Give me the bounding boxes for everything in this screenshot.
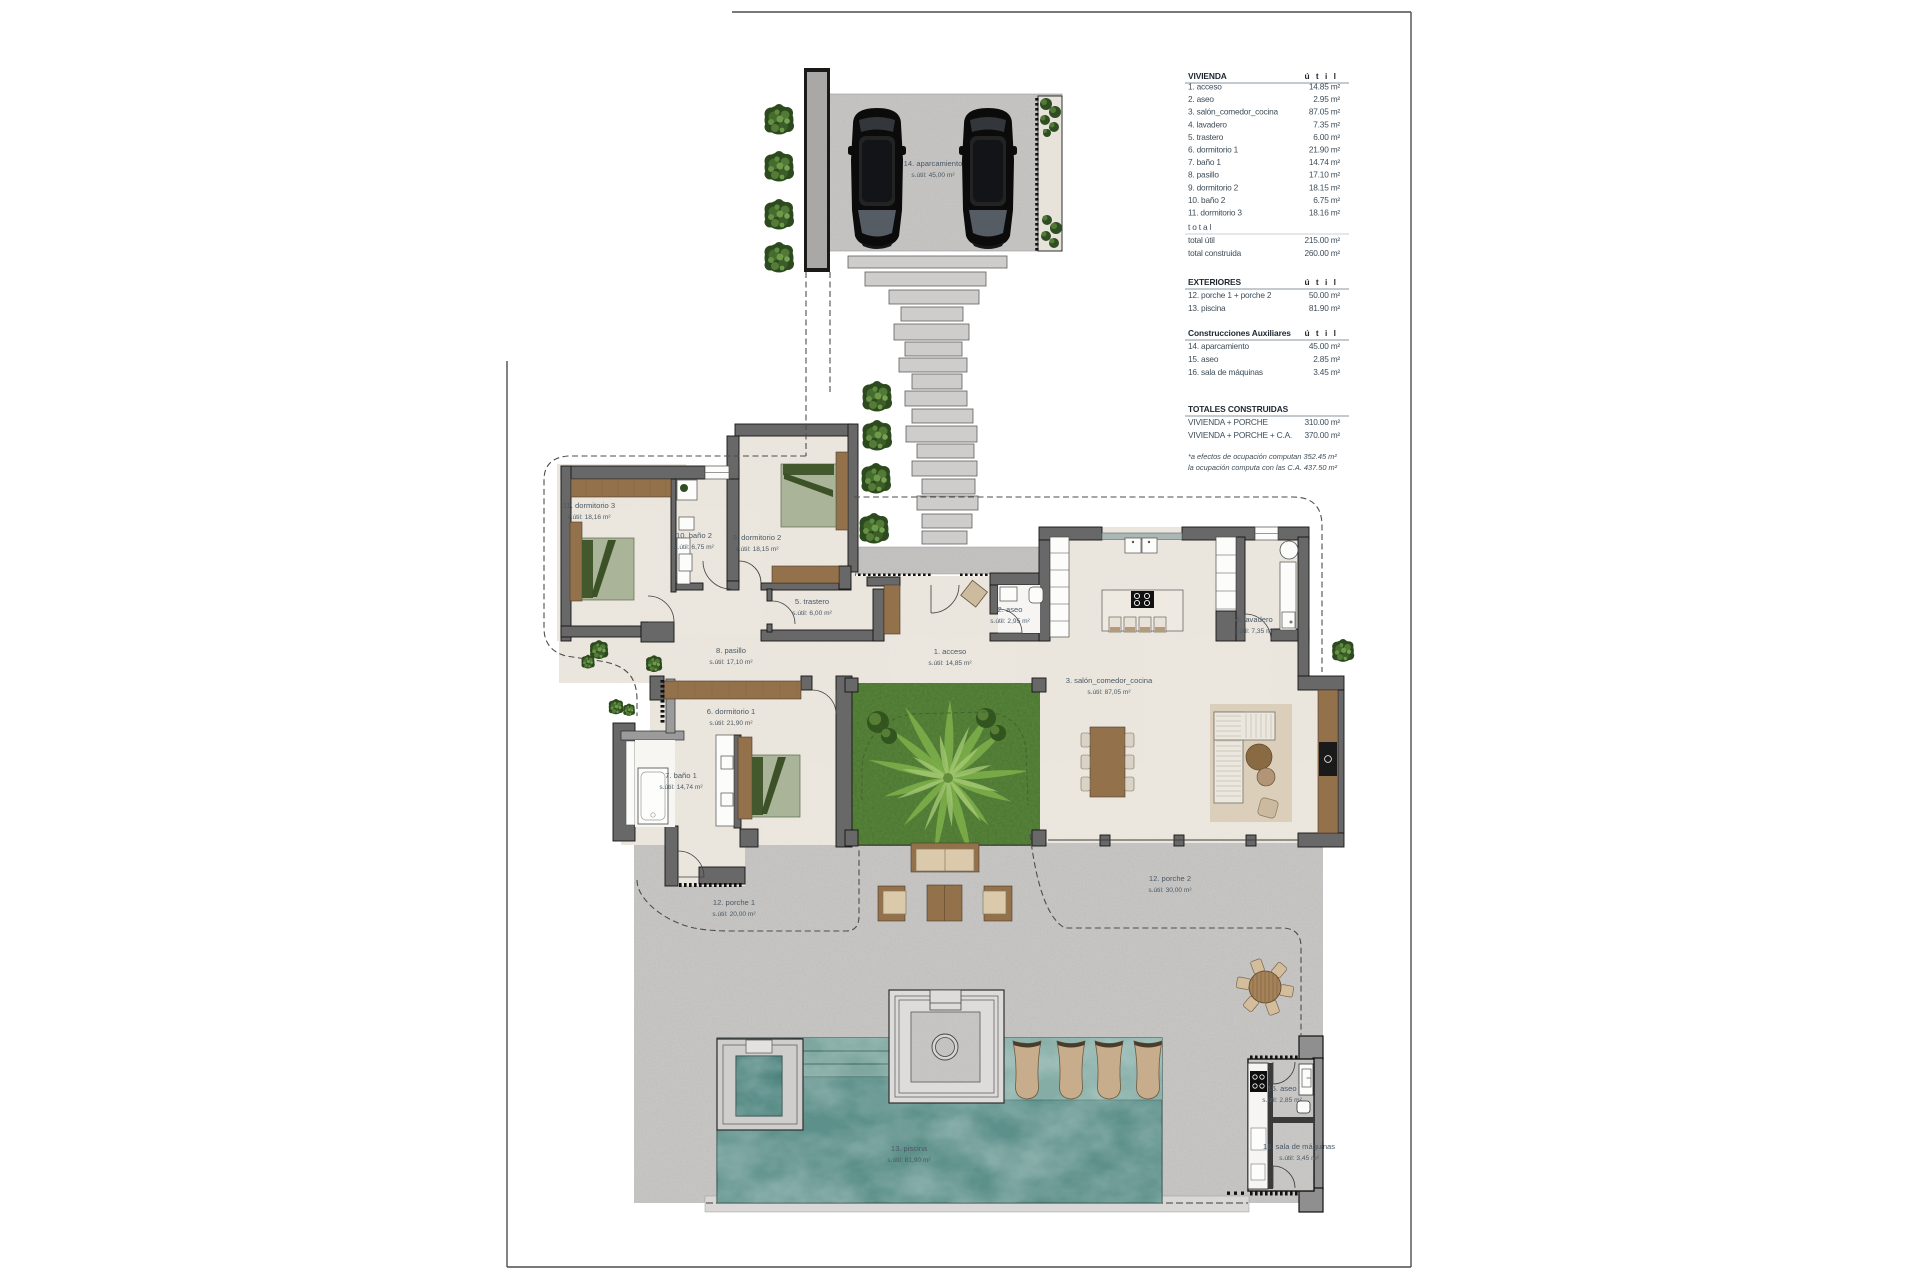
svg-text:12. porche 2: 12. porche 2	[1149, 874, 1191, 883]
svg-text:14. aparcamiento: 14. aparcamiento	[1188, 341, 1249, 351]
svg-text:s.útil: 18,15 m²: s.útil: 18,15 m²	[735, 546, 779, 553]
svg-text:10. baño 2: 10. baño 2	[1188, 195, 1226, 205]
svg-text:17.10 m²: 17.10 m²	[1309, 170, 1341, 180]
svg-text:16. sala de máquinas: 16. sala de máquinas	[1263, 1142, 1335, 1151]
svg-text:10. baño 2: 10. baño 2	[676, 531, 712, 540]
svg-text:s.útil: 21,90 m²: s.útil: 21,90 m²	[709, 720, 753, 727]
svg-text:la ocupación computa con las C: la ocupación computa con las C.A. 437.50…	[1188, 463, 1338, 472]
svg-text:total útil: total útil	[1188, 235, 1215, 245]
svg-text:s.útil: 14,85 m²: s.útil: 14,85 m²	[928, 660, 972, 667]
svg-text:215.00 m²: 215.00 m²	[1304, 235, 1340, 245]
svg-text:87.05 m²: 87.05 m²	[1309, 107, 1341, 117]
svg-text:4. lavadero: 4. lavadero	[1188, 119, 1227, 129]
svg-text:370.00 m²: 370.00 m²	[1304, 430, 1340, 440]
svg-text:4. lavadero: 4. lavadero	[1235, 615, 1273, 624]
svg-text:EXTERIORES: EXTERIORES	[1188, 277, 1241, 287]
svg-text:18.16 m²: 18.16 m²	[1309, 208, 1341, 218]
svg-text:14. aparcamiento: 14. aparcamiento	[904, 159, 963, 168]
svg-text:310.00 m²: 310.00 m²	[1304, 417, 1340, 427]
svg-text:s.útil: 2,95 m²: s.útil: 2,95 m²	[990, 618, 1030, 625]
svg-text:2. aseo: 2. aseo	[998, 605, 1023, 614]
svg-text:s.útil: 17,10 m²: s.útil: 17,10 m²	[709, 659, 753, 666]
svg-text:s.útil: 81,90 m²: s.útil: 81,90 m²	[887, 1157, 931, 1164]
svg-text:21.90 m²: 21.90 m²	[1309, 145, 1341, 155]
svg-text:45.00 m²: 45.00 m²	[1309, 341, 1341, 351]
svg-text:18.15 m²: 18.15 m²	[1309, 182, 1341, 192]
svg-text:s.útil: 20,00 m²: s.útil: 20,00 m²	[712, 911, 756, 918]
svg-text:total construida: total construida	[1188, 248, 1242, 258]
svg-text:16. sala de máquinas: 16. sala de máquinas	[1188, 367, 1263, 377]
svg-text:s.útil: 3,45 m²: s.útil: 3,45 m²	[1279, 1155, 1319, 1162]
svg-text:2. aseo: 2. aseo	[1188, 94, 1214, 104]
svg-text:7.35 m²: 7.35 m²	[1313, 119, 1340, 129]
svg-text:*a efectos de ocupación comput: *a efectos de ocupación computan 352.45 …	[1188, 452, 1337, 461]
svg-text:5. trastero: 5. trastero	[795, 597, 829, 606]
svg-text:s.útil: 45,00 m²: s.útil: 45,00 m²	[911, 172, 955, 179]
svg-text:14.74 m²: 14.74 m²	[1309, 157, 1341, 167]
svg-text:8. pasillo: 8. pasillo	[1188, 170, 1219, 180]
svg-text:VIVIENDA + PORCHE + C.A.: VIVIENDA + PORCHE + C.A.	[1188, 430, 1292, 440]
svg-text:15. aseo: 15. aseo	[1188, 354, 1219, 364]
svg-text:ú t i l: ú t i l	[1304, 328, 1338, 338]
svg-text:7. baño 1: 7. baño 1	[665, 771, 697, 780]
svg-text:81.90 m²: 81.90 m²	[1309, 303, 1341, 313]
svg-text:s.útil: 6,00 m²: s.útil: 6,00 m²	[792, 610, 832, 617]
svg-text:s.útil: 30,00 m²: s.útil: 30,00 m²	[1148, 887, 1192, 894]
svg-text:14.85 m²: 14.85 m²	[1309, 82, 1341, 92]
svg-text:s.útil: 18,16 m²: s.útil: 18,16 m²	[567, 514, 611, 521]
svg-text:15. aseo: 15. aseo	[1267, 1084, 1296, 1093]
svg-text:1. acceso: 1. acceso	[1188, 82, 1222, 92]
svg-text:260.00 m²: 260.00 m²	[1304, 248, 1340, 258]
svg-text:6.00 m²: 6.00 m²	[1313, 132, 1340, 142]
svg-text:6. dormitorio 1: 6. dormitorio 1	[707, 707, 756, 716]
svg-text:s.útil: 87,05 m²: s.útil: 87,05 m²	[1087, 689, 1131, 696]
svg-text:50.00 m²: 50.00 m²	[1309, 290, 1341, 300]
svg-text:6. dormitorio 1: 6. dormitorio 1	[1188, 145, 1239, 155]
svg-text:7. baño 1: 7. baño 1	[1188, 157, 1221, 167]
svg-text:VIVIENDA + PORCHE: VIVIENDA + PORCHE	[1188, 417, 1268, 427]
svg-text:3.45 m²: 3.45 m²	[1313, 367, 1340, 377]
svg-text:s.útil: 7,35 m²: s.útil: 7,35 m²	[1234, 628, 1274, 635]
svg-text:ú t i l: ú t i l	[1304, 71, 1338, 81]
svg-text:6.75 m²: 6.75 m²	[1313, 195, 1340, 205]
svg-text:3. salón_comedor_cocina: 3. salón_comedor_cocina	[1188, 107, 1279, 117]
svg-text:Construcciones Auxiliares: Construcciones Auxiliares	[1188, 328, 1291, 338]
svg-text:12. porche 1 + porche 2: 12. porche 1 + porche 2	[1188, 290, 1272, 300]
svg-text:1. acceso: 1. acceso	[934, 647, 967, 656]
svg-text:13. piscina: 13. piscina	[891, 1144, 928, 1153]
svg-text:t o t a l: t o t a l	[1188, 222, 1211, 232]
svg-text:13. piscina: 13. piscina	[1188, 303, 1226, 313]
svg-text:VIVIENDA: VIVIENDA	[1188, 71, 1227, 81]
svg-text:11. dormitorio 3: 11. dormitorio 3	[1188, 208, 1242, 218]
svg-text:8. pasillo: 8. pasillo	[716, 646, 746, 655]
svg-text:11. dormitorio 3: 11. dormitorio 3	[563, 501, 615, 510]
svg-text:12. porche 1: 12. porche 1	[713, 898, 755, 907]
svg-text:s.útil: 2,85 m²: s.útil: 2,85 m²	[1262, 1097, 1302, 1104]
svg-text:s.útil: 14,74 m²: s.útil: 14,74 m²	[659, 784, 703, 791]
svg-text:3. salón_comedor_cocina: 3. salón_comedor_cocina	[1066, 676, 1153, 685]
svg-text:TOTALES CONSTRUIDAS: TOTALES CONSTRUIDAS	[1188, 404, 1289, 414]
svg-text:2.95 m²: 2.95 m²	[1313, 94, 1340, 104]
svg-text:5. trastero: 5. trastero	[1188, 132, 1224, 142]
svg-text:s.útil: 6,75 m²: s.útil: 6,75 m²	[674, 544, 714, 551]
svg-text:ú t i l: ú t i l	[1304, 277, 1338, 287]
svg-text:9. dormitorio 2: 9. dormitorio 2	[733, 533, 782, 542]
svg-text:9. dormitorio 2: 9. dormitorio 2	[1188, 182, 1239, 192]
svg-text:2.85 m²: 2.85 m²	[1313, 354, 1340, 364]
